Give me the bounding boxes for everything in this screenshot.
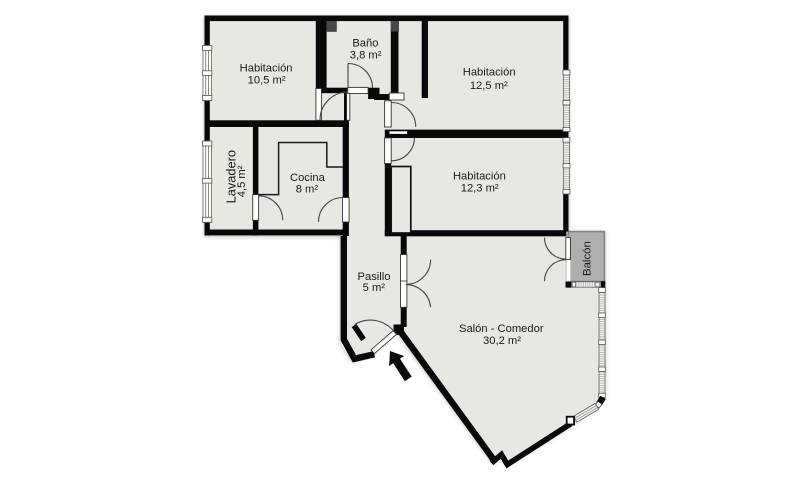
svg-text:Habitación: Habitación [240,62,293,74]
svg-text:Balcón: Balcón [581,241,593,276]
svg-text:4,5 m²: 4,5 m² [236,165,248,197]
svg-text:Habitación: Habitación [463,67,516,79]
svg-text:3,8 m²: 3,8 m² [350,49,382,61]
svg-text:10,5 m²: 10,5 m² [248,75,286,87]
svg-text:Cocina: Cocina [290,172,326,184]
svg-text:5 m²: 5 m² [363,282,386,294]
svg-text:Habitación: Habitación [453,171,506,183]
svg-text:8 m²: 8 m² [296,184,319,196]
svg-text:12,5 m²: 12,5 m² [470,80,508,92]
svg-text:30,2 m²: 30,2 m² [483,335,521,347]
svg-text:Baño: Baño [352,38,378,50]
svg-text:12,3 m²: 12,3 m² [461,183,499,195]
svg-text:Salón - Comedor: Salón - Comedor [459,323,544,335]
